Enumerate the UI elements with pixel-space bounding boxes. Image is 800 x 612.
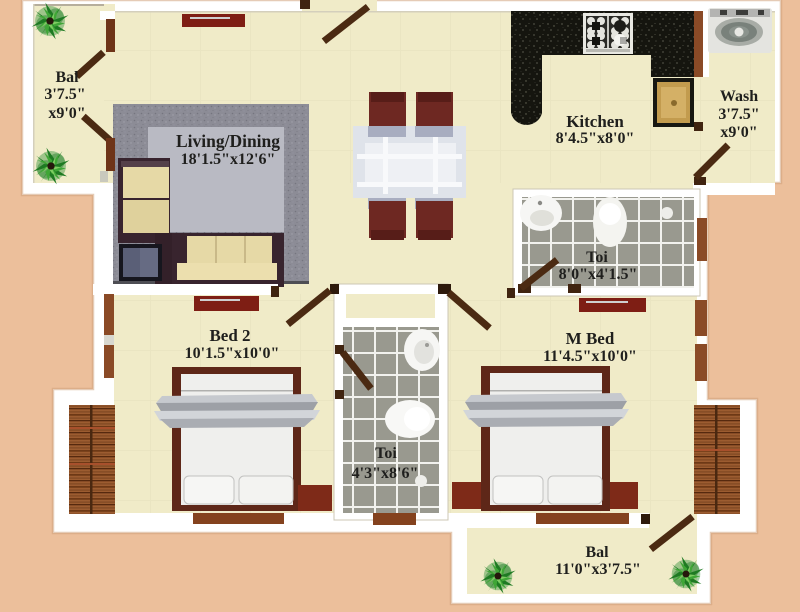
svg-text:18'1.5"x12'6": 18'1.5"x12'6" xyxy=(181,151,276,168)
svg-text:x9'0": x9'0" xyxy=(720,124,757,141)
svg-text:10'1.5"x10'0": 10'1.5"x10'0" xyxy=(185,345,280,362)
svg-text:Living/Dining: Living/Dining xyxy=(176,131,280,151)
svg-text:8'4.5"x8'0": 8'4.5"x8'0" xyxy=(556,130,635,147)
svg-text:Toi: Toi xyxy=(586,249,608,266)
svg-text:3'7.5": 3'7.5" xyxy=(44,86,85,103)
svg-text:4'3"x8'6": 4'3"x8'6" xyxy=(352,465,419,482)
svg-text:8'0"x4'1.5": 8'0"x4'1.5" xyxy=(559,266,638,283)
svg-text:Bal: Bal xyxy=(55,69,79,86)
svg-text:x9'0": x9'0" xyxy=(48,105,85,122)
svg-text:Wash: Wash xyxy=(720,88,758,105)
svg-text:11'0"x3'7.5": 11'0"x3'7.5" xyxy=(555,561,641,578)
svg-text:3'7.5": 3'7.5" xyxy=(718,106,759,123)
svg-text:11'4.5"x10'0": 11'4.5"x10'0" xyxy=(543,348,637,365)
svg-text:Bal: Bal xyxy=(585,544,609,561)
svg-text:Kitchen: Kitchen xyxy=(566,112,624,131)
svg-text:M Bed: M Bed xyxy=(566,329,615,348)
svg-text:Bed 2: Bed 2 xyxy=(209,326,250,345)
svg-text:Toi: Toi xyxy=(375,445,397,462)
